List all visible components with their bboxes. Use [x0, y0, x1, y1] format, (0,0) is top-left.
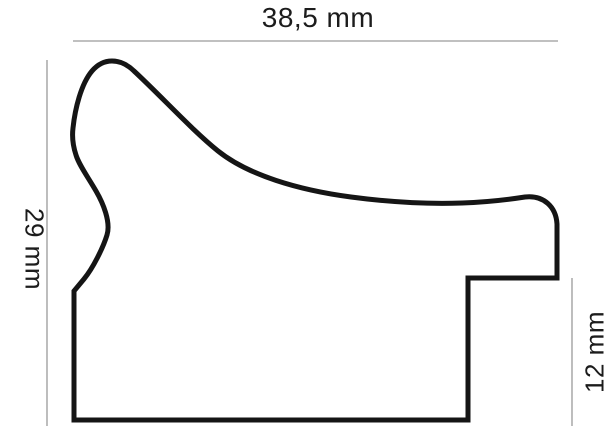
moulding-profile-outline: [73, 61, 557, 420]
rabbet-dimension-label: 12 mm: [580, 311, 611, 393]
height-dimension-label: 29 mm: [19, 208, 50, 290]
width-dimension-label: 38,5 mm: [262, 2, 374, 34]
moulding-profile-diagram: 38,5 mm 29 mm 12 mm: [0, 0, 613, 439]
profile-drawing: [0, 0, 613, 439]
